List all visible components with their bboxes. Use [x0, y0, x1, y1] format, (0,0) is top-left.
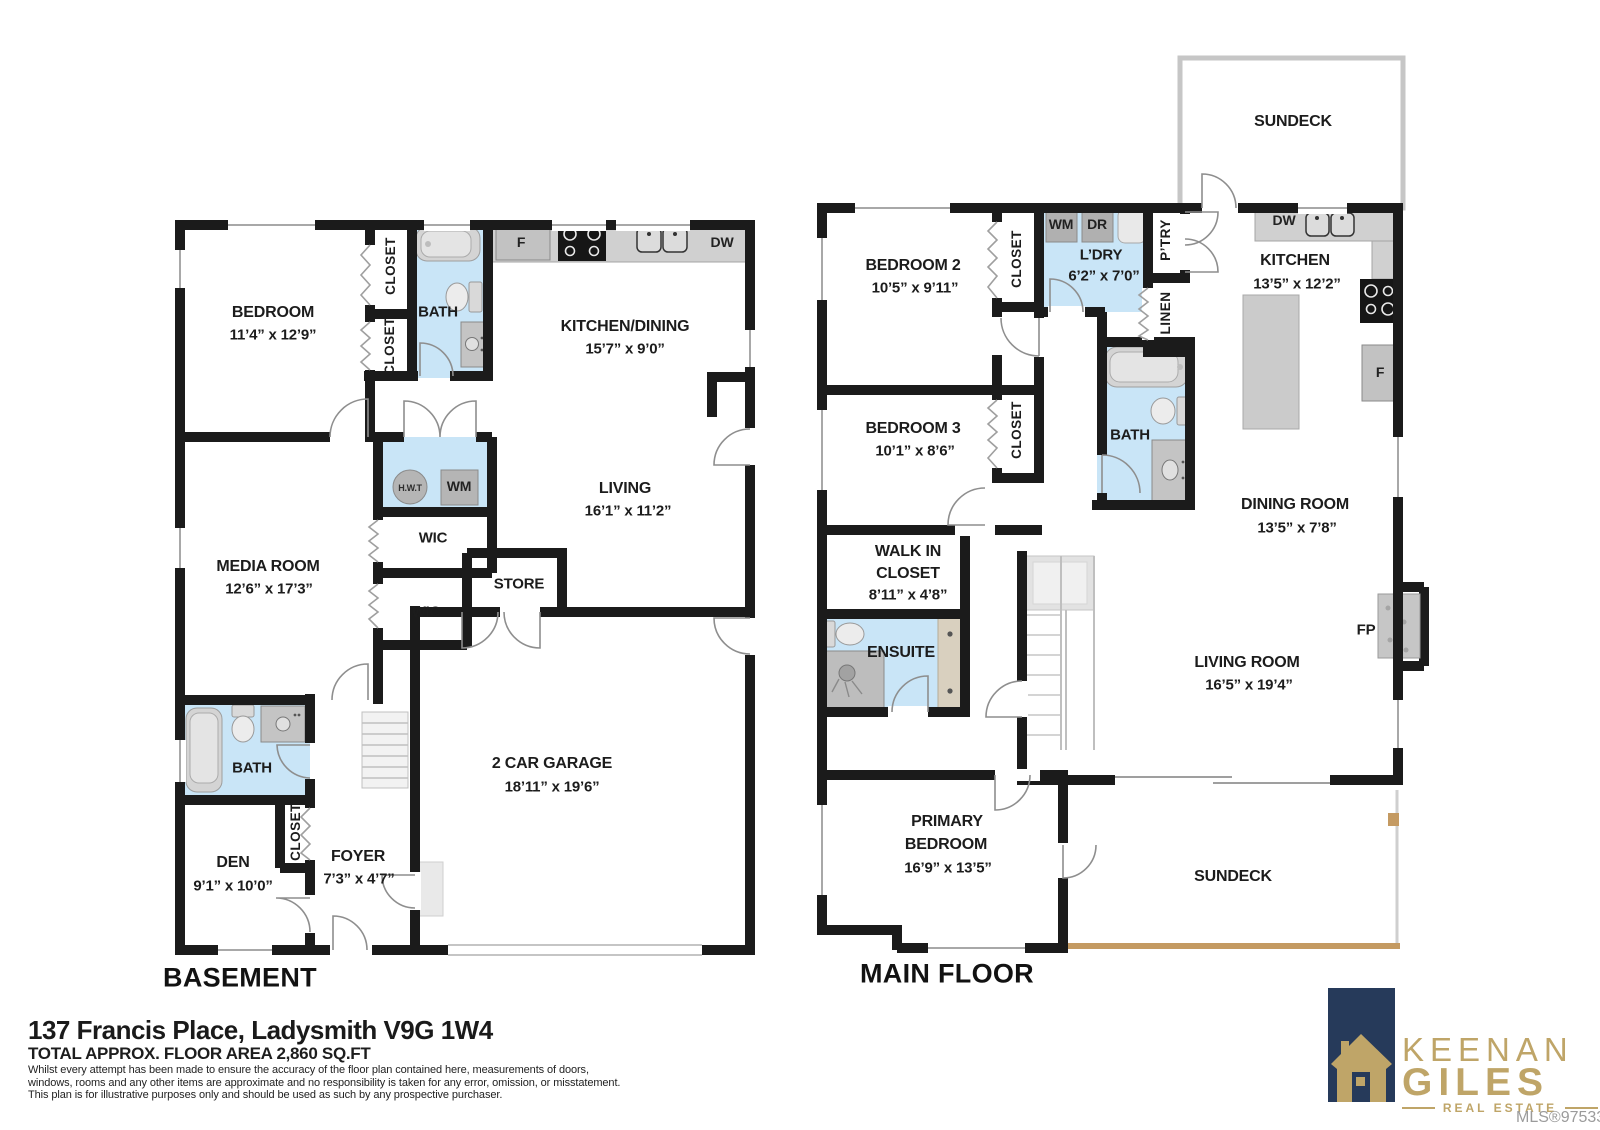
room-dims-media: 12’6” x 17’3” — [225, 580, 312, 597]
room-label-media: MEDIA ROOM — [216, 558, 319, 576]
room-label-linen: LINEN — [1158, 292, 1174, 335]
sundeck-upper-outline — [1180, 58, 1403, 208]
room-dims-dining: 13’5” x 7’8” — [1257, 519, 1336, 536]
room-label-den: DEN — [216, 854, 249, 872]
sink2-icon — [261, 706, 305, 742]
room-dims-den: 9’1” x 10’0” — [193, 877, 272, 894]
property-address: 137 Francis Place, Ladysmith V9G 1W4 — [28, 1016, 493, 1045]
ensuite-toilet-icon — [824, 621, 864, 647]
room-dims-foyer: 7’3” x 4’7” — [323, 870, 394, 887]
room-label-pantry: P’TRY — [1158, 219, 1174, 261]
room-label-walkin-2: CLOSET — [876, 565, 940, 583]
tagline-rule-left — [1402, 1107, 1435, 1109]
room-dims-kitchen-dining: 15’7” x 9’0” — [585, 340, 664, 357]
room-label-living: LIVING — [599, 480, 651, 498]
stove-icon-main — [1360, 279, 1398, 323]
washer-label-main: WM — [1049, 216, 1073, 232]
mls-number: MLS®975331 — [1516, 1110, 1600, 1126]
toilet2-icon — [232, 705, 254, 742]
vanity-icon-main — [1152, 440, 1190, 502]
room-label-bath: BATH — [418, 303, 458, 320]
room-label-primary-2: BEDROOM — [905, 836, 987, 854]
room-dims-bedroom3: 10’1” x 8’6” — [875, 442, 954, 459]
room-label-walkin-1: WALK IN — [875, 543, 941, 561]
floor-plan-page: BEDROOM 11’4” x 12’9” CLOSET CLOSET BATH… — [0, 0, 1600, 1130]
room-label-foyer: FOYER — [331, 848, 385, 866]
room-label-closet-bed2: CLOSET — [1009, 230, 1025, 288]
room-dims-kitchen: 13’5” x 12’2” — [1253, 275, 1340, 292]
dishwasher-label: DW — [711, 234, 734, 250]
room-label-living-main: LIVING ROOM — [1194, 654, 1299, 672]
room-dims-walkin: 8’11” x 4’8” — [869, 586, 948, 603]
brand-logo — [1328, 988, 1395, 1102]
room-label-bedroom: BEDROOM — [232, 304, 314, 322]
fridge-label: F — [517, 234, 525, 250]
room-label-garage: 2 CAR GARAGE — [492, 755, 612, 773]
basement-title: BASEMENT — [163, 965, 317, 992]
room-dims-bedroom: 11’4” x 12’9” — [230, 326, 317, 343]
room-label-closet-mid: CLOSET — [382, 317, 398, 375]
room-dims-living-main: 16’5” x 19’4” — [1205, 676, 1292, 693]
room-label-bath-main: BATH — [1110, 426, 1150, 443]
floor-area-total: TOTAL APPROX. FLOOR AREA 2,860 SQ.FT — [28, 1045, 370, 1064]
room-label-den-closet: CLOSET — [288, 803, 304, 861]
room-label-dining: DINING ROOM — [1241, 496, 1349, 514]
toilet-icon-main — [1151, 397, 1189, 425]
room-label-kitchen: KITCHEN — [1260, 252, 1330, 270]
dishwasher-label-main: DW — [1273, 212, 1296, 228]
basement-stairs — [362, 712, 408, 788]
bathtub2-icon — [186, 708, 222, 792]
room-label-sundeck-lower: SUNDECK — [1194, 868, 1272, 886]
room-label-sundeck-upper: SUNDECK — [1254, 113, 1332, 131]
sundeck-lower — [1068, 785, 1400, 946]
room-label-store: STORE — [494, 575, 544, 592]
main-floor-title: MAIN FLOOR — [860, 961, 1034, 988]
fridge-label-main: F — [1376, 364, 1384, 380]
room-dims-living: 16’1” x 11’2” — [585, 502, 672, 519]
room-label-kitchen-dining: KITCHEN/DINING — [561, 318, 690, 336]
room-dims-primary: 16’9” x 13’5” — [904, 859, 991, 876]
disclaimer-line-1: Whilst every attempt has been made to en… — [28, 1064, 620, 1077]
disclaimer-line-2: windows, rooms and any other items are a… — [28, 1077, 620, 1090]
kitchen-island — [1243, 295, 1299, 429]
ensuite-vanity-icon — [938, 616, 962, 710]
room-label-bath-lower: BATH — [232, 759, 272, 776]
room-dims-laundry: 6’2” x 7’0” — [1068, 267, 1139, 284]
room-label-wic-upper: WIC — [419, 529, 448, 546]
dryer-label: DR — [1087, 216, 1107, 232]
room-label-closet-top: CLOSET — [383, 237, 399, 295]
room-dims-garage: 18’11” x 19’6” — [505, 778, 600, 795]
washer-label: WM — [447, 478, 471, 494]
room-label-closet-bed3: CLOSET — [1009, 401, 1025, 459]
bathtub-icon — [416, 227, 480, 261]
laundry-sink-icon — [1118, 209, 1146, 243]
room-label-bedroom3: BEDROOM 3 — [865, 420, 960, 438]
room-label-bedroom2: BEDROOM 2 — [865, 257, 960, 275]
room-label-primary-1: PRIMARY — [911, 813, 983, 831]
room-label-wic-lower: WIC — [412, 603, 441, 620]
fireplace-label: FP — [1357, 621, 1376, 638]
disclaimer-line-3: This plan is for illustrative purposes o… — [28, 1089, 620, 1102]
room-label-ensuite: ENSUITE — [867, 644, 935, 662]
sundeck-post — [1388, 813, 1399, 826]
disclaimer-text: Whilst every attempt has been made to en… — [28, 1064, 620, 1102]
brand-name-last: GILES — [1402, 1063, 1549, 1102]
sink-icon — [461, 322, 486, 367]
room-label-laundry: L’DRY — [1080, 246, 1123, 263]
hot-water-tank-label: H.W.T — [398, 483, 422, 493]
room-dims-bedroom2: 10’5” x 9’11” — [872, 279, 959, 296]
